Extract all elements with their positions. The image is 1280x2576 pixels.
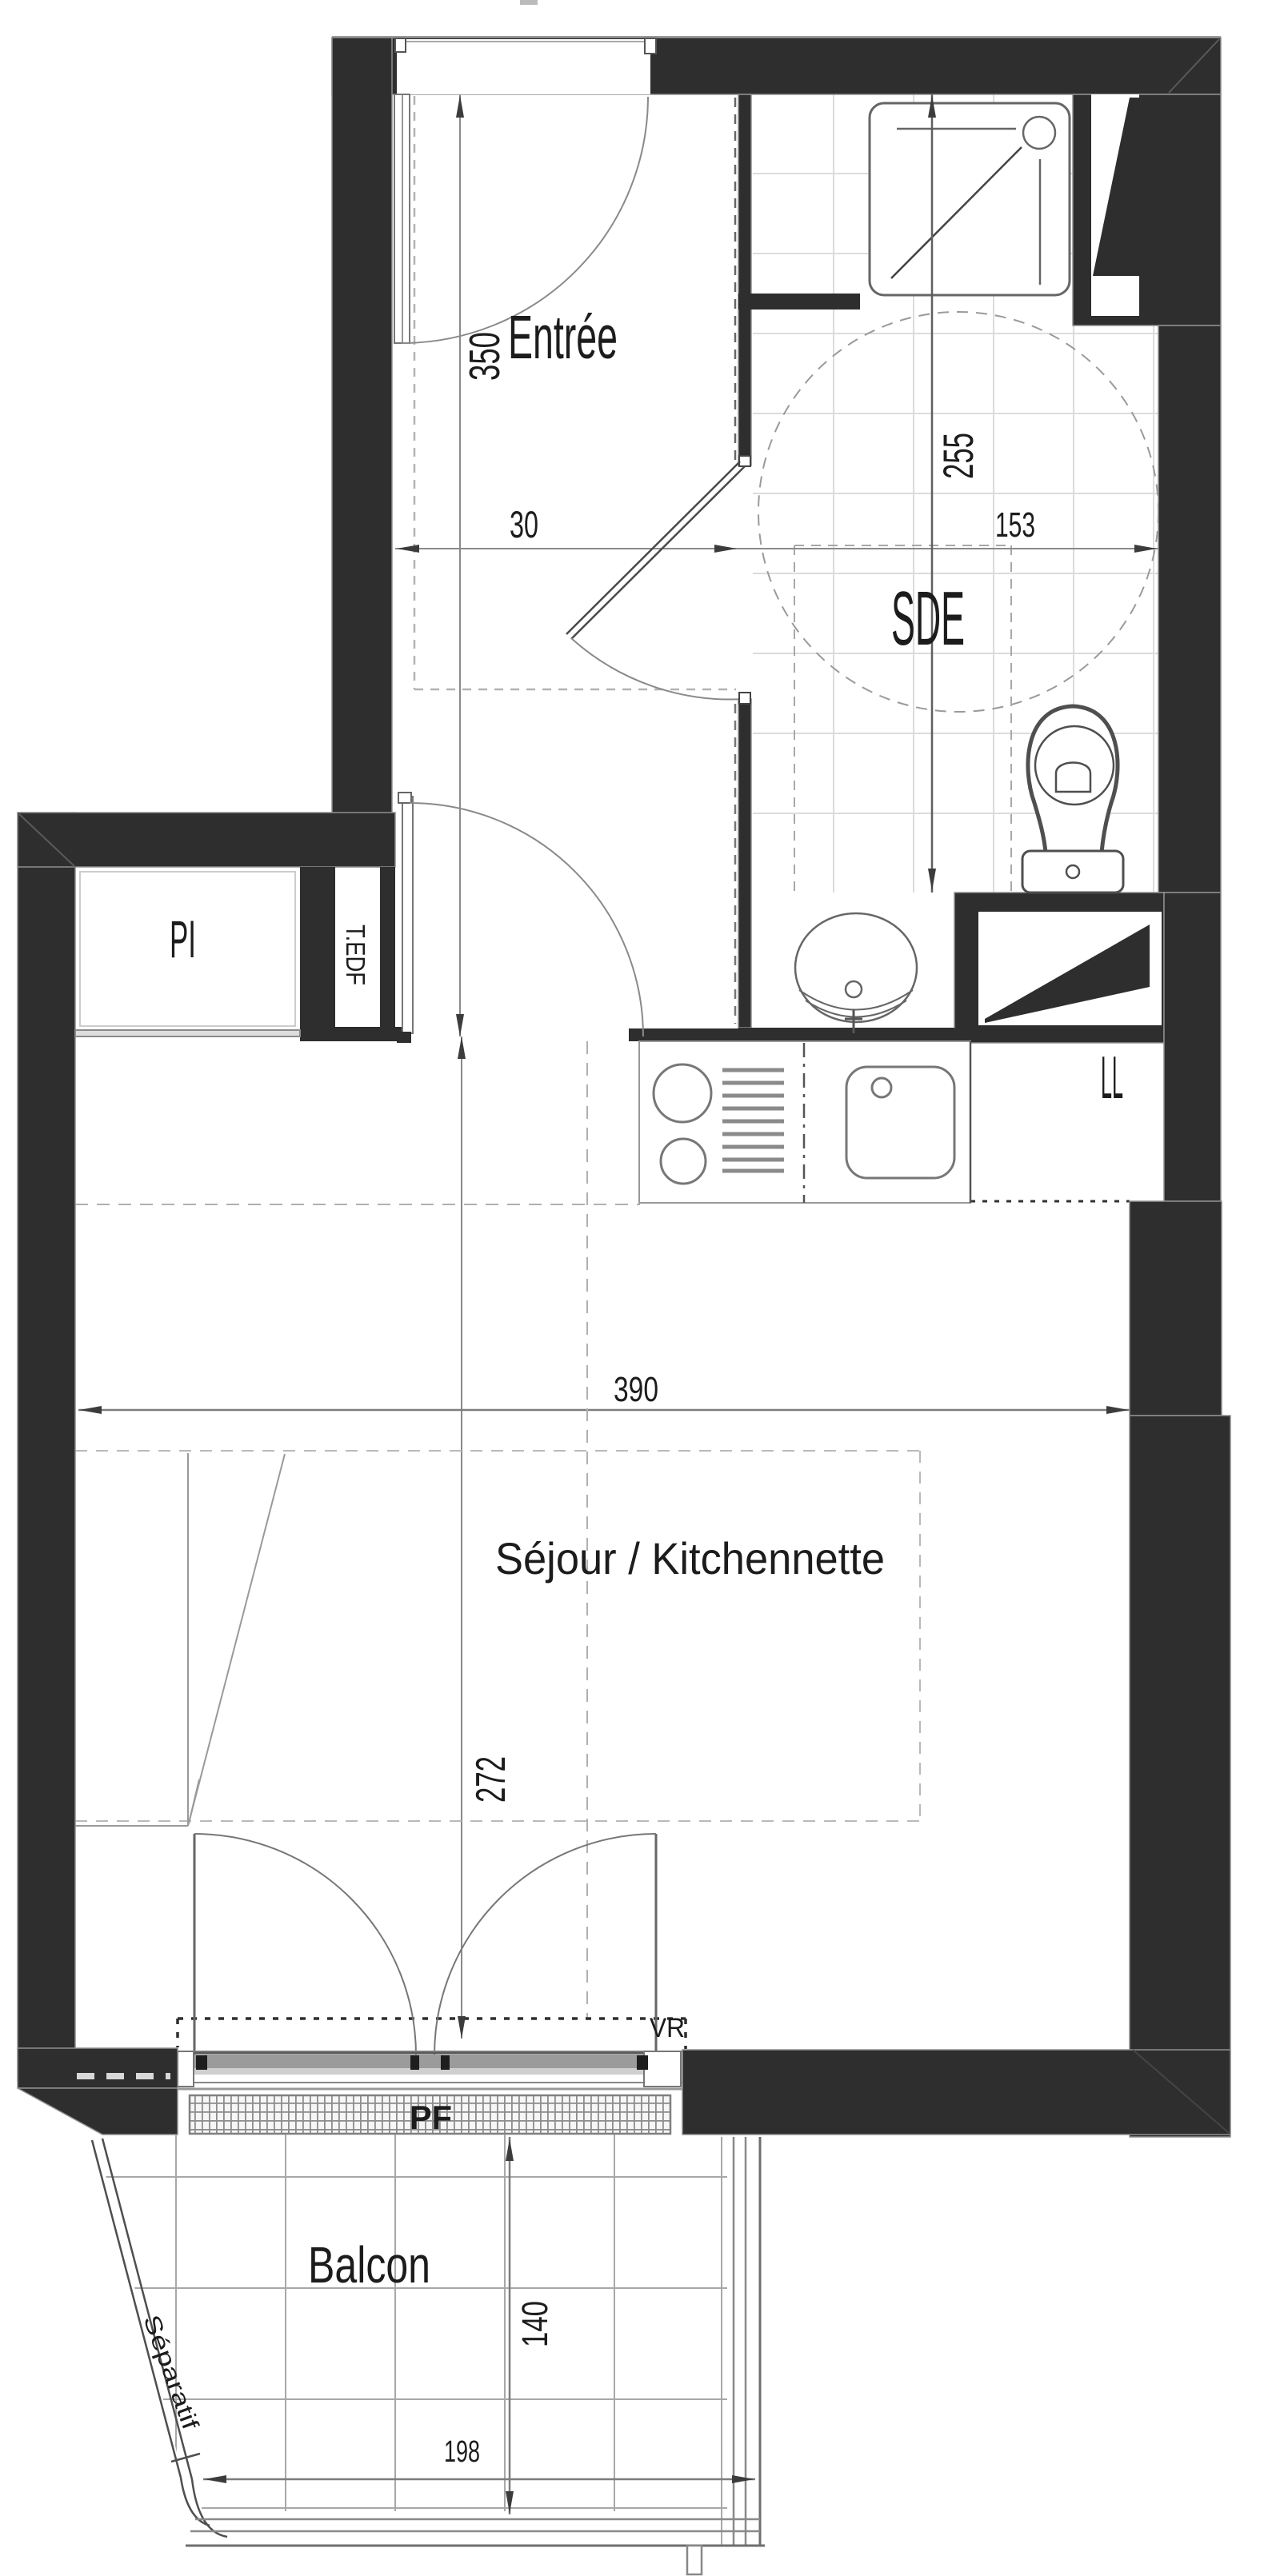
svg-text:Séjour / Kitchennette: Séjour / Kitchennette (495, 1533, 885, 1584)
svg-text:PI: PI (170, 909, 196, 968)
svg-text:350: 350 (461, 332, 509, 381)
svg-text:T.EDF: T.EDF (341, 925, 370, 985)
svg-text:390: 390 (614, 1370, 658, 1409)
svg-text:PF: PF (410, 2099, 452, 2136)
svg-text:255: 255 (935, 433, 982, 479)
svg-text:Balcon: Balcon (308, 2236, 430, 2294)
svg-text:VR: VR (650, 2013, 685, 2043)
svg-text:198: 198 (444, 2435, 480, 2469)
svg-text:153: 153 (995, 505, 1035, 545)
svg-text:Entrée: Entrée (508, 303, 618, 372)
svg-text:SDE: SDE (891, 576, 965, 661)
svg-text:LL: LL (1101, 1044, 1123, 1111)
svg-text:272: 272 (468, 1756, 514, 1803)
svg-text:140: 140 (514, 2301, 555, 2347)
svg-text:30: 30 (510, 503, 538, 545)
